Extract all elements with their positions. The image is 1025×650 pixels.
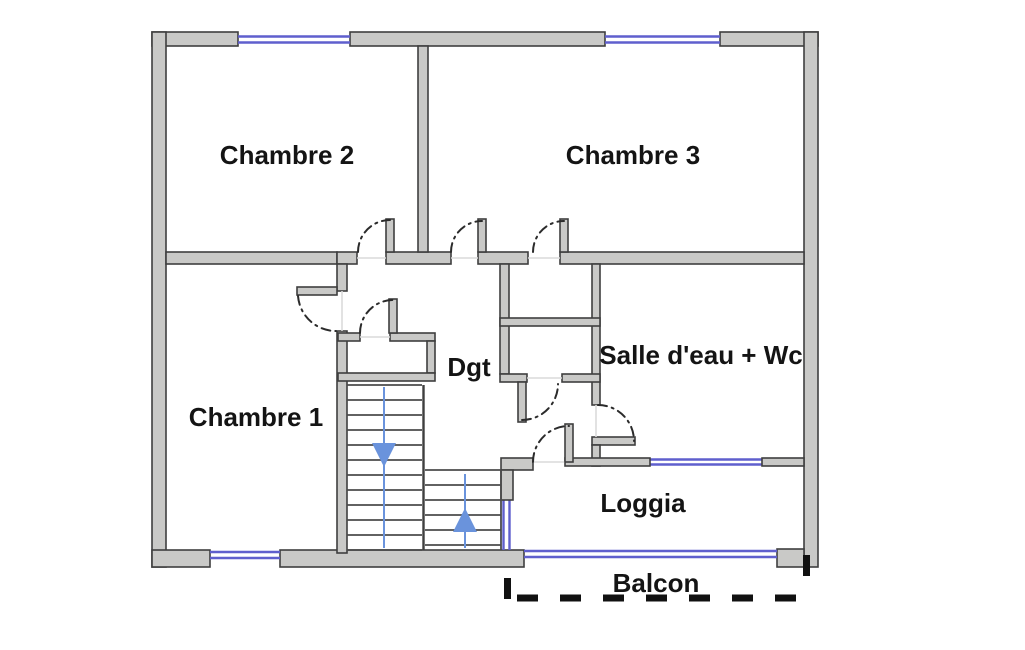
window-chambre3-top [605, 37, 720, 43]
wall-salle-eau-north [560, 252, 804, 264]
wall-right [804, 32, 818, 567]
wall-hall-seg3 [478, 252, 528, 264]
exterior-walls [152, 32, 818, 567]
wall-loggia-nw-corner [501, 458, 533, 470]
balcony-left-tick [504, 578, 511, 599]
window-salle-eau-loggia [650, 460, 762, 465]
door-chambre3 [451, 219, 486, 252]
room-label-chambre1: Chambre 1 [189, 402, 323, 432]
wall-chambre1-east-upper [337, 264, 347, 291]
window-loggia-bottom [524, 551, 777, 557]
door-storage-lower [518, 382, 558, 422]
window-stairwell-loggia [504, 500, 510, 550]
wall-chambre1-chambre2 [166, 252, 337, 264]
stairs-right-flight [425, 470, 501, 550]
floor-plan-canvas: Chambre 2 Chambre 3 Chambre 1 Dgt Salle … [0, 0, 1025, 650]
door-loggia [533, 424, 573, 462]
wall-loggia-north-2 [762, 458, 804, 466]
wall-chambre1-east-lower [337, 331, 347, 553]
interior-walls [166, 46, 804, 553]
door-chambre2 [358, 219, 394, 252]
wall-hall-seg2 [386, 252, 451, 264]
room-label-salle-eau-wc: Salle d'eau + Wc [599, 340, 802, 370]
window-chambre1-bottom [210, 552, 280, 558]
stairs-left-flight [347, 385, 422, 550]
wall-hall-seg1 [337, 252, 357, 264]
stair-up-arrow [453, 508, 477, 532]
wall-top-2 [350, 32, 605, 46]
door-closet-chambre3 [533, 219, 568, 252]
room-label-dgt: Dgt [447, 352, 491, 382]
wall-bottom-1 [152, 550, 210, 567]
windows [210, 37, 777, 559]
stair-down-arrow [372, 443, 396, 467]
wall-bottom-2 [280, 550, 524, 567]
room-label-chambre3: Chambre 3 [566, 140, 700, 170]
wall-chambre2-chambre3 [418, 46, 428, 252]
stairs [347, 385, 501, 550]
door-salle-eau [598, 405, 634, 441]
window-chambre2-top [238, 37, 350, 43]
door-closet-hall [360, 299, 397, 333]
room-label-loggia: Loggia [600, 488, 686, 518]
balcony-right-tick [803, 555, 810, 576]
wall-loggia-west [501, 470, 513, 500]
wall-bottom-3 [777, 549, 804, 567]
storage-rooms-walls [500, 264, 600, 405]
wall-left [152, 32, 166, 567]
room-label-balcon: Balcon [613, 568, 700, 598]
floor-plan-drawing: Chambre 2 Chambre 3 Chambre 1 Dgt Salle … [0, 0, 1025, 650]
closet-hall [338, 333, 435, 381]
wall-loggia-north-1 [565, 458, 650, 466]
door-chambre1 [297, 287, 337, 331]
room-label-chambre2: Chambre 2 [220, 140, 354, 170]
wall-salle-eau-door-return [592, 437, 635, 445]
